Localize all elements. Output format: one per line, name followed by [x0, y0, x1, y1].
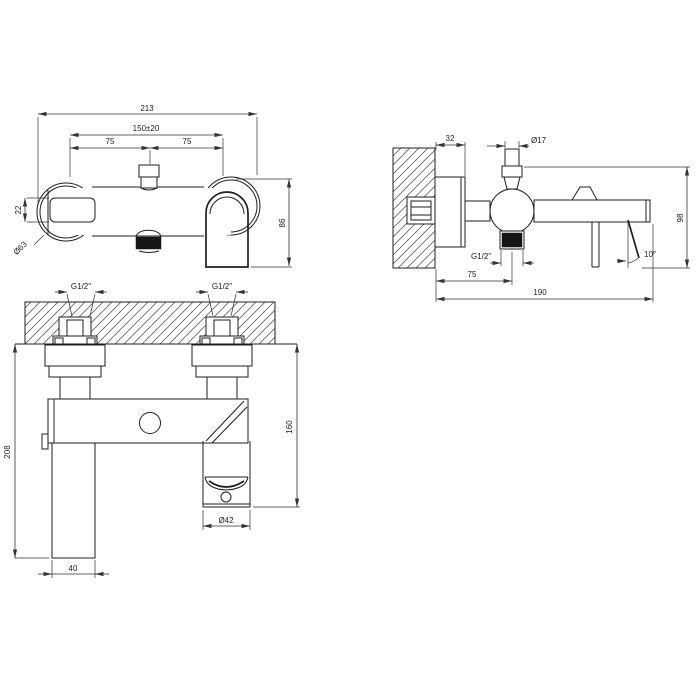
dim-escutcheon-depth: 32: [446, 134, 455, 143]
wall-union-fitting: [407, 197, 435, 224]
dim-overall-height: 208: [3, 445, 12, 459]
dim-window-height: 22: [14, 205, 23, 214]
dim-outlet-thread-side: G1/2": [471, 252, 491, 261]
aerator-hole: [221, 492, 231, 502]
dim-top-port-diameter: Ø17: [531, 136, 547, 145]
dim-outlet-offset: 75: [468, 270, 477, 279]
drawing-canvas: 213 150±20 75 75 22 Ø63 86: [0, 0, 700, 700]
dim-handle-width: 40: [69, 564, 78, 573]
dim-right-offset: 75: [183, 137, 192, 146]
left-mount-escutcheon: [45, 345, 105, 399]
dim-inlet-thread-left: G1/2": [71, 282, 91, 291]
body-left-step: [42, 434, 48, 449]
right-inlet-fitting: [200, 317, 244, 344]
right-mount-escutcheon: [192, 345, 252, 399]
side-view: 32 Ø17 98 G1/2" 75 190 10°: [393, 134, 690, 302]
spout-side: [534, 200, 650, 222]
dim-total-width: 213: [140, 104, 154, 113]
dim-escutcheon-diameter: Ø63: [12, 239, 29, 256]
side-body-connector: [465, 201, 490, 221]
handle-blade-side: [592, 220, 639, 268]
dim-inlet-thread-right: G1/2": [212, 282, 232, 291]
dim-projection: 190: [533, 288, 547, 297]
dim-handle-angle: 10°: [644, 250, 656, 259]
dim-spout-diameter: Ø42: [218, 516, 234, 525]
dim-left-offset: 75: [106, 137, 115, 146]
front-view: 213 150±20 75 75 22 Ø63 86: [12, 104, 292, 267]
diverter-button: [140, 413, 161, 434]
bottom-shower-port: [500, 231, 524, 249]
dim-side-height: 98: [676, 213, 685, 222]
dim-inlet-spacing: 150±20: [133, 124, 160, 133]
installed-view: G1/2" G1/2" 208 160 40 Ø4: [3, 282, 300, 578]
technical-drawing: 213 150±20 75 75 22 Ø63 86: [0, 0, 700, 700]
top-diverter-port: [502, 149, 522, 189]
temperature-plate-window: [50, 198, 95, 222]
left-inlet-fitting: [53, 317, 97, 344]
spout-bottom: [203, 441, 250, 507]
lever-handle-bottom: [52, 443, 95, 558]
mixer-body-side: [490, 189, 534, 233]
dim-front-height: 86: [278, 218, 287, 227]
dim-spout-height: 160: [285, 420, 294, 434]
diverter-knob: [139, 165, 159, 190]
handle-pivot-side: [572, 187, 597, 200]
